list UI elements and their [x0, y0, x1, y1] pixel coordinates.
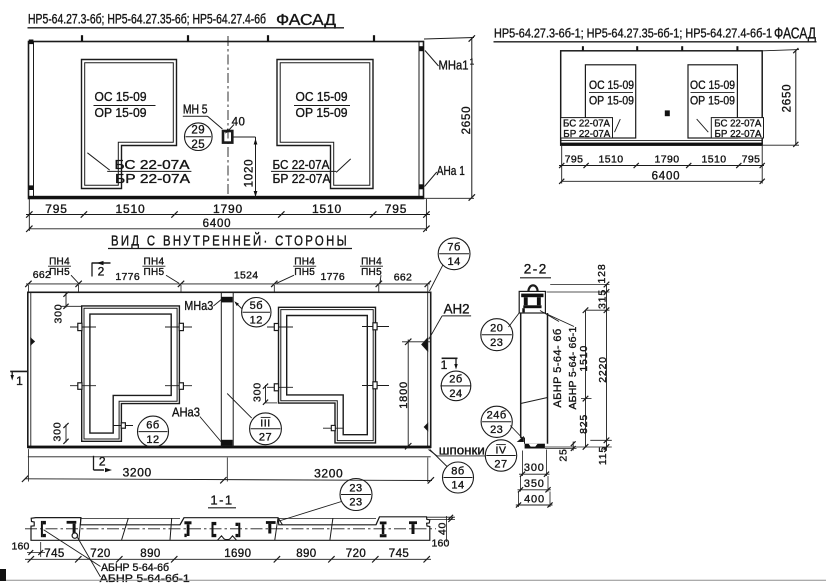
svg-text:27: 27 — [259, 432, 272, 444]
svg-text:1: 1 — [16, 374, 23, 388]
svg-text:ОС 15-09: ОС 15-09 — [589, 80, 634, 92]
svg-text:720: 720 — [346, 548, 366, 560]
svg-text:1790: 1790 — [213, 202, 243, 216]
svg-text:1790: 1790 — [655, 154, 680, 166]
svg-text:128: 128 — [596, 264, 608, 284]
svg-text:720: 720 — [90, 548, 110, 560]
svg-text:300: 300 — [53, 304, 65, 324]
svg-text:НР5-64.27.3-6б; НР5-64.27.35-6: НР5-64.27.3-6б; НР5-64.27.35-6б; НР5-64.… — [28, 12, 266, 27]
svg-text:АБНР 5-64-6б: АБНР 5-64-6б — [101, 562, 169, 574]
svg-text:2: 2 — [98, 265, 105, 279]
svg-text:ОС 15-09: ОС 15-09 — [95, 89, 147, 104]
svg-text:1510: 1510 — [116, 202, 146, 216]
svg-text:НР5-64.27.3-6б-1; НР5-64.27.35: НР5-64.27.3-6б-1; НР5-64.27.35-6б-1; НР5… — [494, 26, 772, 41]
svg-text:БС 22-07А: БС 22-07А — [115, 157, 190, 172]
svg-text:5б: 5б — [250, 300, 263, 312]
svg-text:ФАСАД: ФАСАД — [774, 26, 816, 43]
svg-text:300: 300 — [252, 382, 264, 402]
svg-text:1510: 1510 — [312, 202, 342, 216]
svg-text:14: 14 — [451, 480, 464, 492]
svg-text:IV: IV — [495, 444, 506, 456]
svg-text:1800: 1800 — [398, 381, 410, 409]
svg-text:8б: 8б — [451, 465, 464, 477]
svg-text:25: 25 — [558, 448, 570, 461]
svg-text:АБНР 5-64-6б-1: АБНР 5-64-6б-1 — [100, 573, 190, 585]
svg-text:350: 350 — [524, 478, 545, 490]
svg-text:2650: 2650 — [461, 106, 473, 135]
svg-text:115: 115 — [597, 446, 609, 465]
svg-text:ПН5: ПН5 — [143, 267, 164, 278]
svg-text:825: 825 — [578, 414, 590, 434]
svg-text:890: 890 — [140, 548, 160, 560]
svg-text:ОР 15-09: ОР 15-09 — [95, 105, 147, 120]
svg-text:40: 40 — [232, 117, 246, 129]
svg-text:795: 795 — [45, 202, 67, 216]
svg-text:23: 23 — [490, 337, 503, 349]
svg-text:14: 14 — [447, 256, 460, 268]
svg-text:2-2: 2-2 — [524, 262, 548, 277]
svg-text:7б: 7б — [447, 242, 460, 254]
svg-text:795: 795 — [742, 154, 761, 166]
svg-text:29: 29 — [191, 125, 205, 137]
svg-text:1: 1 — [441, 358, 448, 372]
svg-text:24: 24 — [449, 388, 462, 400]
svg-text:шпонки: шпонки — [439, 442, 485, 457]
svg-text:1510: 1510 — [702, 154, 727, 166]
svg-text:ПН5: ПН5 — [49, 267, 70, 278]
svg-text:23: 23 — [490, 424, 503, 436]
svg-text:3200: 3200 — [314, 467, 343, 481]
svg-text:БР 22-07А: БР 22-07А — [115, 171, 190, 186]
svg-text:БР 22-07А: БР 22-07А — [563, 128, 610, 140]
svg-text:ВИД С ВНУТРЕННЕЙ· СТОРОНЫ: ВИД С ВНУТРЕННЕЙ· СТОРОНЫ — [111, 232, 349, 250]
svg-text:ОР 15-09: ОР 15-09 — [296, 105, 348, 120]
svg-text:БР 22-07А: БР 22-07А — [715, 128, 762, 140]
svg-text:ОС 15-09: ОС 15-09 — [296, 89, 348, 104]
svg-text:795: 795 — [385, 202, 407, 216]
svg-text:ФАСАД: ФАСАД — [276, 12, 336, 29]
svg-text:1-1: 1-1 — [210, 493, 233, 508]
svg-text:1510: 1510 — [578, 345, 590, 372]
svg-text:12: 12 — [250, 314, 263, 326]
svg-text:890: 890 — [296, 548, 316, 560]
svg-text:300: 300 — [52, 422, 64, 442]
svg-text:1776: 1776 — [321, 271, 346, 283]
svg-text:2220: 2220 — [597, 356, 609, 383]
svg-text:27: 27 — [494, 458, 507, 470]
svg-text:662: 662 — [394, 272, 412, 284]
svg-text:12: 12 — [146, 434, 159, 446]
svg-text:745: 745 — [44, 548, 64, 560]
svg-text:795: 795 — [565, 154, 584, 166]
svg-text:3200: 3200 — [123, 466, 152, 480]
svg-text:АН2: АН2 — [444, 302, 470, 317]
svg-text:1020: 1020 — [244, 159, 256, 188]
svg-text:1690: 1690 — [224, 548, 251, 560]
svg-text:ОР 15-09: ОР 15-09 — [690, 95, 735, 107]
svg-text:1524: 1524 — [234, 270, 259, 282]
svg-text:23: 23 — [349, 497, 362, 509]
svg-text:23: 23 — [349, 482, 362, 494]
svg-text:1776: 1776 — [115, 271, 140, 283]
svg-text:40: 40 — [437, 522, 449, 535]
svg-text:III: III — [260, 418, 271, 430]
svg-text:400: 400 — [524, 493, 545, 505]
svg-text:1510: 1510 — [599, 154, 624, 166]
svg-text:АНа3: АНа3 — [172, 405, 200, 420]
svg-text:ПН5: ПН5 — [294, 267, 315, 278]
svg-text:ОС 15-09: ОС 15-09 — [690, 80, 735, 92]
svg-text:АБНР 5-64- 6б: АБНР 5-64- 6б — [552, 328, 564, 407]
svg-text:БС 22-07А: БС 22-07А — [273, 157, 330, 172]
svg-text:6400: 6400 — [652, 171, 681, 183]
svg-text:ПН5: ПН5 — [361, 267, 382, 278]
svg-text:745: 745 — [389, 548, 409, 560]
svg-text:МНа1: МНа1 — [439, 58, 469, 73]
svg-text:БР 22-07А: БР 22-07А — [273, 171, 331, 186]
svg-text:20: 20 — [490, 323, 503, 335]
svg-text:24б: 24б — [487, 410, 507, 422]
svg-text:160: 160 — [11, 541, 29, 553]
svg-text:МНа3: МНа3 — [184, 298, 213, 313]
svg-text:МН 5: МН 5 — [183, 102, 208, 117]
svg-text:2650: 2650 — [782, 84, 794, 113]
svg-text:АНа 1: АНа 1 — [437, 163, 465, 178]
svg-text:6400: 6400 — [203, 218, 232, 230]
svg-text:300: 300 — [524, 462, 545, 474]
svg-text:ОР 15-09: ОР 15-09 — [589, 95, 634, 107]
svg-text:6б: 6б — [146, 419, 159, 431]
svg-text:25: 25 — [191, 139, 205, 151]
svg-text:2б: 2б — [449, 374, 462, 386]
